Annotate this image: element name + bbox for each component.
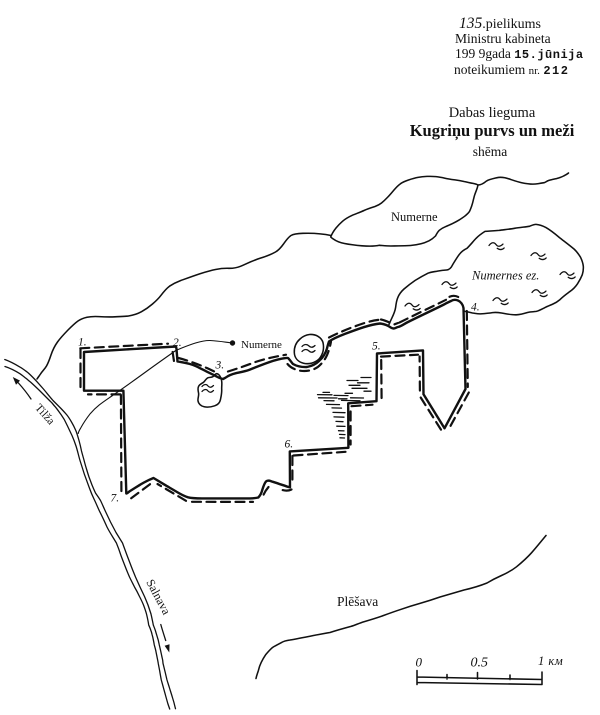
svg-text:2.: 2. — [173, 337, 182, 349]
svg-text:Numerne: Numerne — [241, 339, 282, 351]
svg-text:6.: 6. — [285, 439, 294, 451]
svg-text:4.: 4. — [471, 302, 480, 314]
svg-text:Tilža: Tilža — [32, 402, 56, 427]
svg-text:Salnava: Salnava — [143, 577, 174, 618]
svg-text:0.5: 0.5 — [471, 656, 489, 671]
svg-text:7.: 7. — [111, 493, 120, 505]
svg-text:Numernes ez.: Numernes ez. — [471, 269, 539, 283]
svg-text:0: 0 — [416, 655, 423, 670]
svg-text:Plēšava: Plēšava — [337, 594, 378, 609]
svg-text:1.: 1. — [78, 337, 87, 349]
svg-text:1 км: 1 км — [538, 654, 563, 668]
svg-text:3.: 3. — [215, 360, 225, 372]
svg-text:5.: 5. — [372, 341, 381, 353]
svg-text:Numerne: Numerne — [391, 210, 438, 224]
